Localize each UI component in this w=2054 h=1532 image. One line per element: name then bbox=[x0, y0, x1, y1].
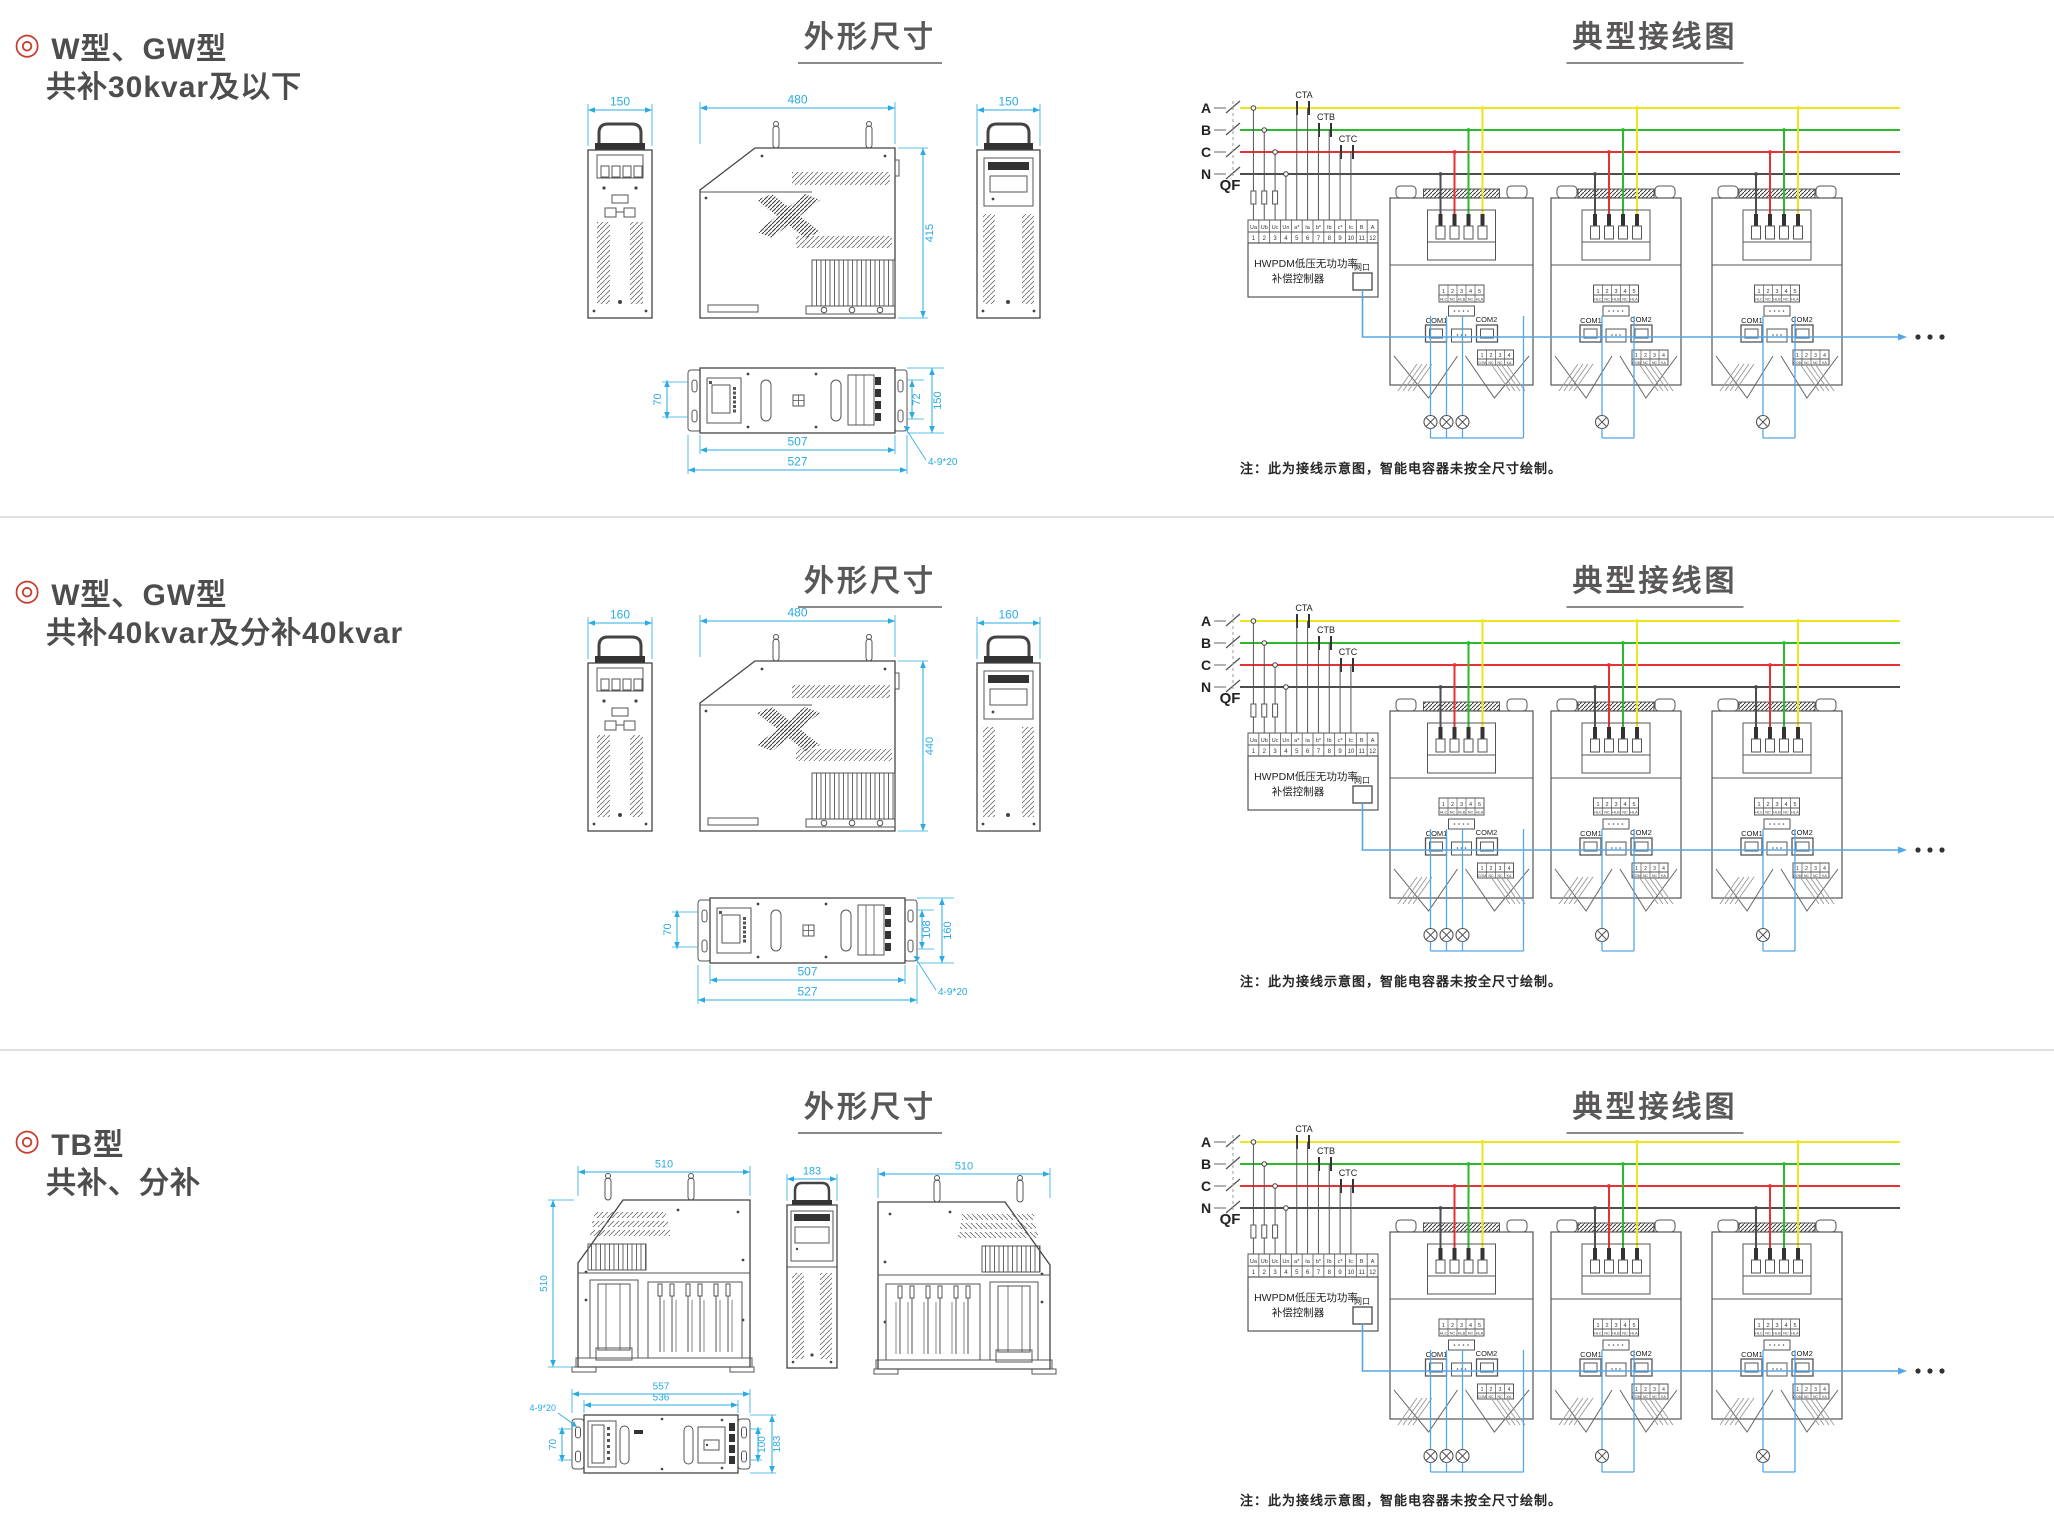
wiring-note: 注：此为接线示意图，智能电容器未按全尺寸绘制。 bbox=[1240, 1490, 1562, 1509]
wiring-diagram-heading: 典型接线图 bbox=[1567, 1082, 1744, 1134]
section-divider bbox=[0, 1049, 2054, 1051]
outline-dimensions-heading: 外形尺寸 bbox=[798, 1082, 942, 1134]
section-subtitle: 共补、分补 bbox=[46, 1158, 201, 1202]
section-bullet-icon: ◎ bbox=[14, 1124, 41, 1157]
section-divider bbox=[0, 516, 2054, 518]
catalog-page: 15048041515070721505075274-9*20ABCNQFCTA… bbox=[0, 0, 2054, 1532]
section-tb: ◎TB型 共补、分补 外形尺寸 典型接线图 注：此为接线示意图，智能电容器未按全… bbox=[0, 0, 2054, 1532]
